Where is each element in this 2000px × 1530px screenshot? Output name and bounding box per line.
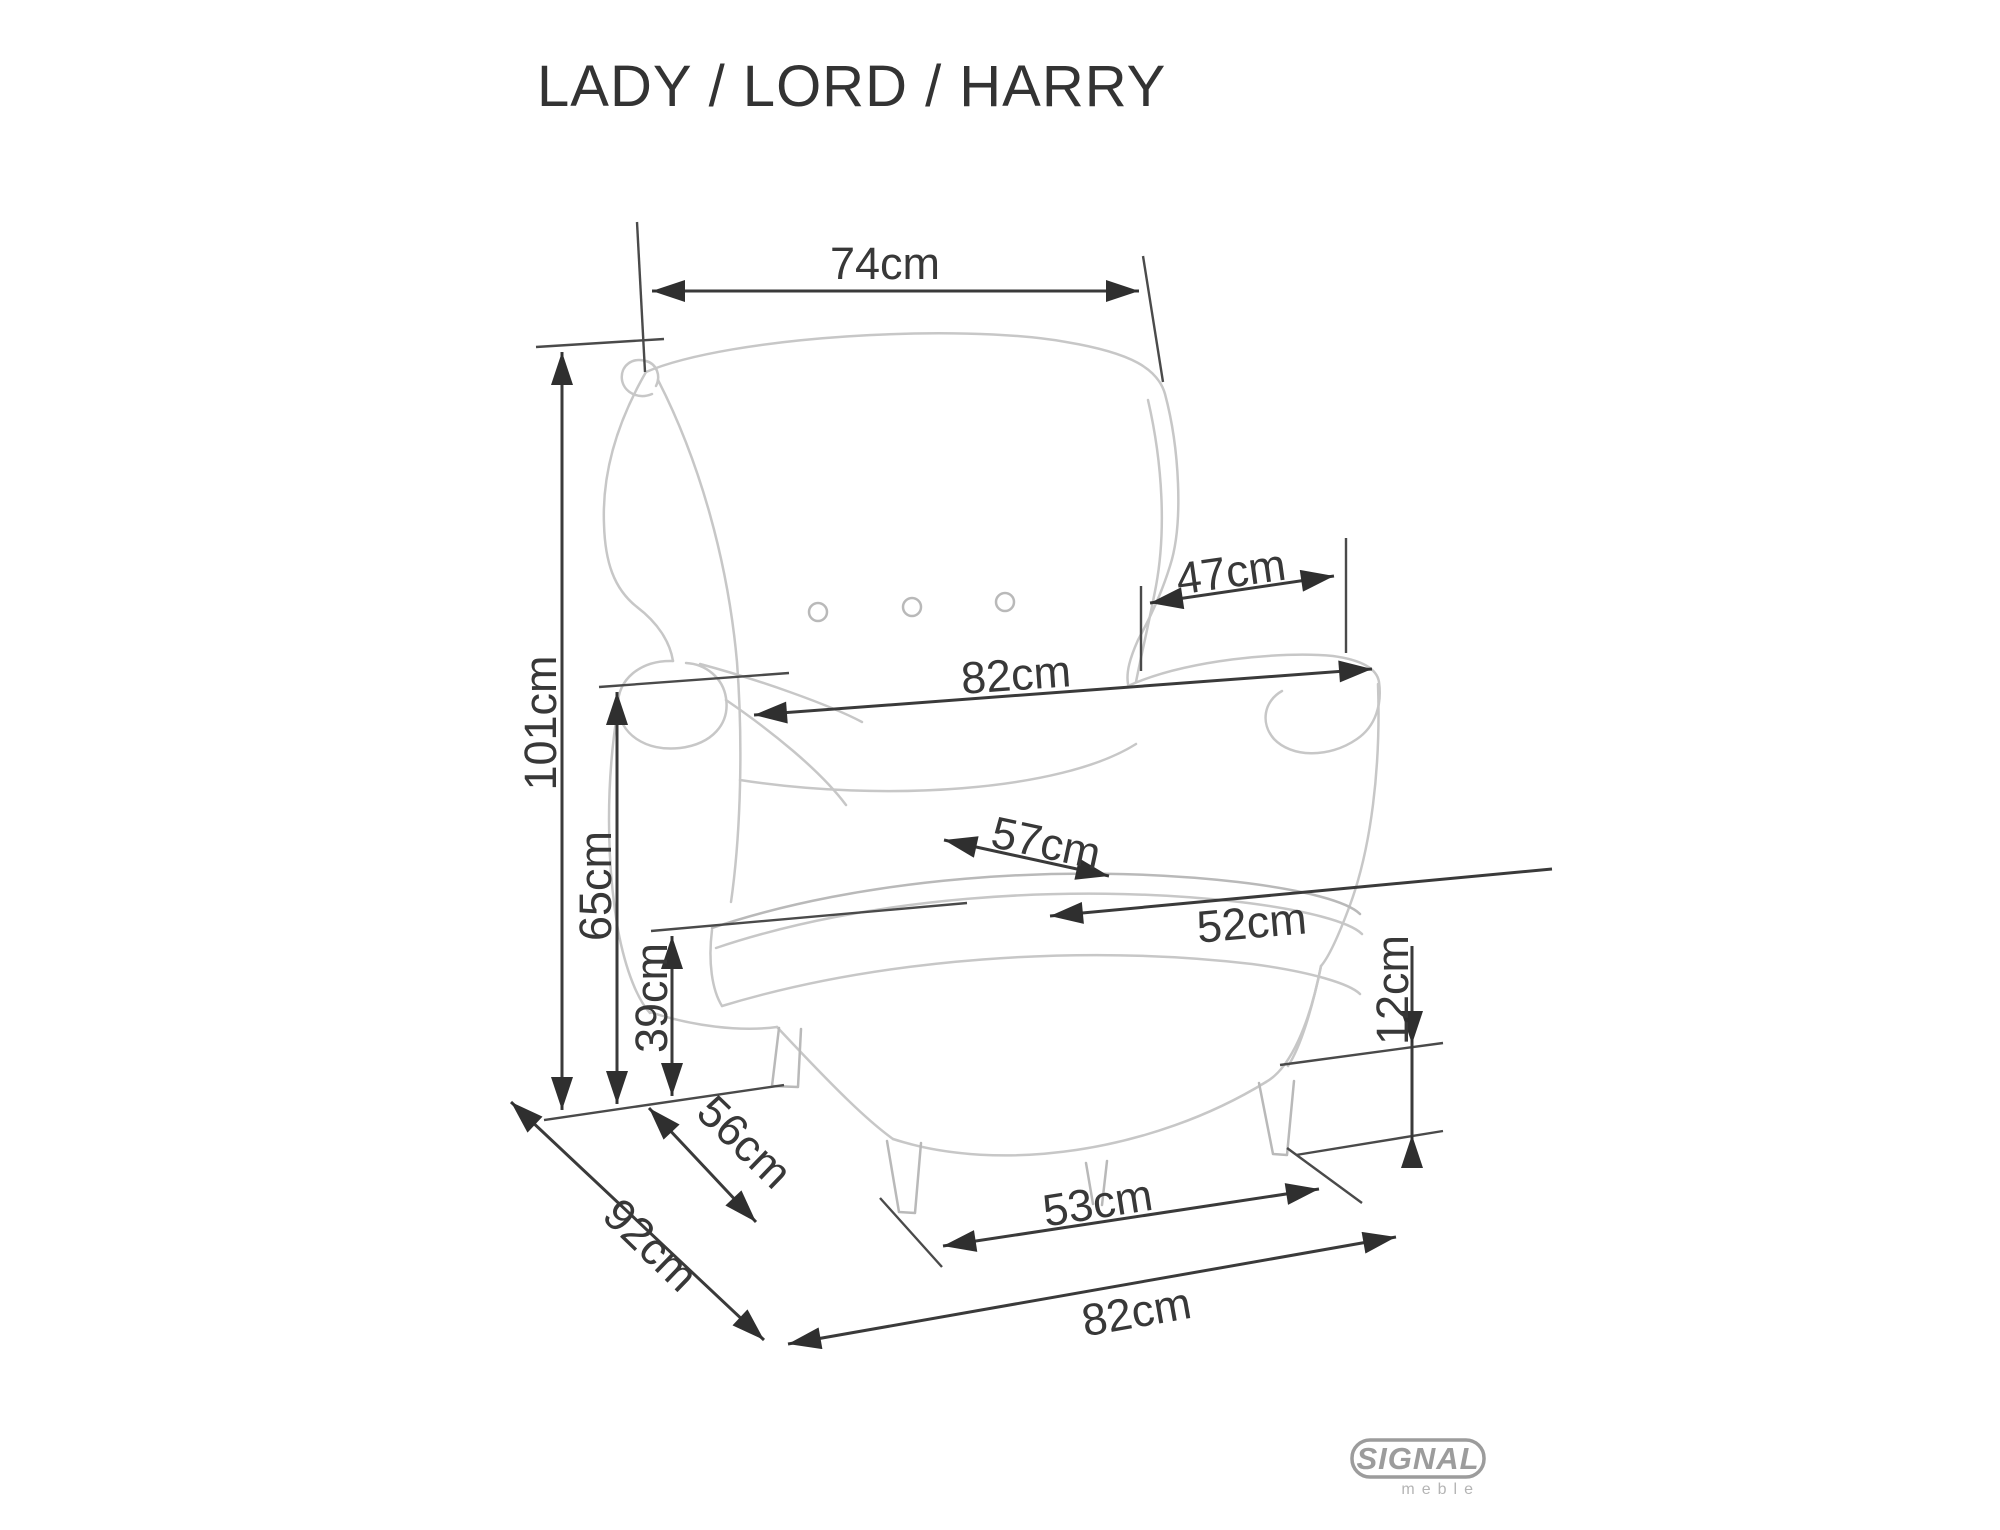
ext-74-right: [1143, 256, 1163, 382]
left-armrest-scroll: [618, 661, 727, 749]
dim-label-top-width: 74cm: [830, 238, 940, 289]
logo-sub-text: meble: [1401, 1481, 1480, 1498]
dimension-labels: 74cm 101cm 65cm 39cm 56cm 92cm 53cm 82cm…: [515, 238, 1418, 1346]
ext-12-floor: [1296, 1131, 1443, 1155]
ext-74-left: [637, 222, 645, 372]
right-armrest: [1128, 655, 1380, 754]
seat-cushion-bottom: [722, 955, 1360, 1006]
extension-lines: [536, 222, 1443, 1267]
ext-53-right: [1287, 1148, 1362, 1203]
front-left-leg: [887, 1141, 921, 1213]
armchair-dimension-drawing: LADY / LORD / HARRY: [0, 0, 2000, 1530]
left-wing-seam: [658, 380, 740, 902]
ext-12-top: [1280, 1043, 1443, 1065]
dim-label-seat-width: 57cm: [987, 806, 1105, 879]
armchair-sketch: [604, 333, 1380, 1213]
dim-label-seat-depth: 52cm: [1195, 892, 1309, 952]
logo-brand-text: SIGNAL: [1356, 1441, 1479, 1476]
dim-label-total-height: 101cm: [515, 655, 566, 790]
dim-label-front-leg-spacing: 53cm: [1039, 1169, 1156, 1237]
ext-53-left: [880, 1198, 942, 1267]
technical-drawing-page: LADY / LORD / HARRY: [0, 0, 2000, 1530]
left-wing-outline: [604, 372, 673, 661]
dim-label-armrest-height: 65cm: [570, 831, 621, 941]
backrest-bottom-crease: [740, 744, 1136, 791]
dim-label-seat-depth-diagonal: 56cm: [687, 1085, 802, 1198]
tufting-buttons: [809, 593, 1014, 621]
ext-39-top: [651, 903, 967, 931]
button-icon: [809, 603, 827, 621]
page-title: LADY / LORD / HARRY: [537, 54, 1166, 119]
dim-label-seat-height: 39cm: [626, 943, 677, 1053]
chair-legs: [772, 1028, 1294, 1213]
skirt-front-bottom: [893, 1082, 1266, 1155]
button-icon: [996, 593, 1014, 611]
dim-label-total-width: 82cm: [1078, 1277, 1195, 1346]
skirt-right-corner: [1266, 966, 1321, 1082]
dim-label-width-over-armrests: 82cm: [959, 645, 1072, 704]
button-icon: [903, 598, 921, 616]
dim-label-armrest-length: 47cm: [1173, 539, 1289, 605]
dim-label-leg-height: 12cm: [1367, 935, 1418, 1045]
left-wing-curl: [622, 360, 658, 396]
front-right-leg: [1259, 1081, 1294, 1155]
brand-logo: SIGNAL meble: [1352, 1440, 1484, 1498]
seat-cushion-corner: [710, 930, 722, 1006]
skirt-left-corner: [777, 1027, 893, 1139]
backrest-outline: [646, 333, 1178, 684]
right-side-outline: [1288, 684, 1379, 1066]
dim-label-total-depth: 92cm: [593, 1188, 708, 1301]
